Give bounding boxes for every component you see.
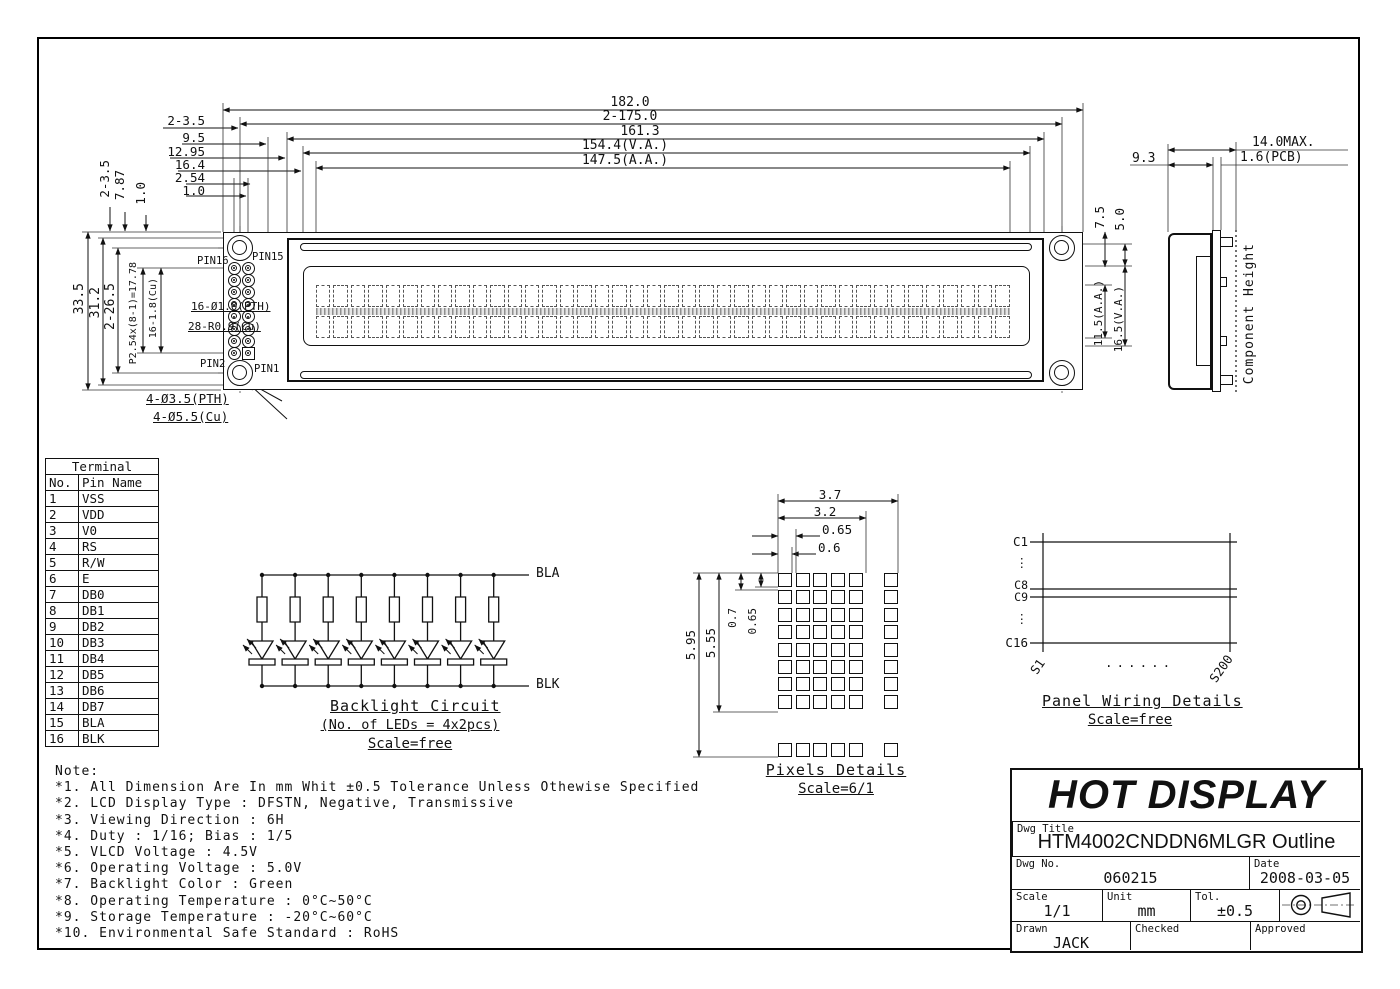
pixel-cell [796,608,810,622]
pixel-grid [778,573,898,757]
terminal-table-title: Terminal [46,459,159,475]
pin-pad [228,335,241,348]
note-line: *8. Operating Temperature : 0°C~50°C [55,894,699,910]
date-cell: Date 2008-03-05 [1249,856,1360,889]
pixel-cell [778,625,792,639]
char-cell [839,285,853,307]
char-cell [525,285,539,307]
terminal-row: 7DB0 [46,587,159,603]
side-view-pin [1220,375,1233,385]
char-cell [455,316,469,338]
char-cell [647,316,661,338]
char-cell [386,285,400,307]
note-line: *7. Backlight Color : Green [55,877,699,893]
pin-label: PIN16 [197,256,229,267]
blk-net-label: BLK [536,678,559,692]
char-cell [699,285,713,307]
terminal-row: 1VSS [46,491,159,507]
terminal-row: 13DB6 [46,683,159,699]
terminal-row: 4RS [46,539,159,555]
backlight-scale: Scale=free [330,737,490,752]
dim-label: 2-3.5 [145,114,205,127]
char-cell [664,316,678,338]
char-cell [908,316,922,338]
pixel-cell [796,660,810,674]
terminal-row: 9DB2 [46,619,159,635]
checked-cell: Checked [1130,921,1250,950]
char-cell [874,285,888,307]
terminal-row: 6E [46,571,159,587]
char-cell [821,285,835,307]
pad-spec-label: 16-Ø1.0(PTH) [191,301,270,313]
pixel-cell [813,608,827,622]
dim-label: P2.54x(8-1)=17.78 [128,262,139,364]
terminal-row: 14DB7 [46,699,159,715]
char-cell [699,316,713,338]
char-cell [978,316,992,338]
pin-pad [228,347,241,360]
side-view-solder-bump [1220,336,1227,346]
note-line: *10. Environmental Safe Standard : RoHS [55,926,699,942]
mount-hole [1049,235,1075,261]
char-cell [978,285,992,307]
pixel-cell [796,695,810,709]
dim-label: 2-175.0 [585,110,675,124]
pixel-cell [796,643,810,657]
char-cell [577,316,591,338]
terminal-row: 2VDD [46,507,159,523]
dim-label: 1.0 [133,182,148,205]
pixel-cell [849,677,863,691]
terminal-row: 15BLA [46,715,159,731]
terminal-col-no: No. [46,475,79,491]
pixel-cell [813,590,827,604]
dwg-no-cell: Dwg No. 060215 [1012,856,1249,889]
pad-spec-label: 28-R0.9(Cu) [188,321,261,333]
pin-pad [228,274,241,287]
side-view-pcb [1212,230,1221,392]
terminal-row: 5R/W [46,555,159,571]
char-cell [804,316,818,338]
pin-label: PIN1 [254,364,279,375]
dim-label: 11.5(A.A.) [1092,280,1105,346]
unit-value: mm [1103,902,1190,920]
char-cell [386,316,400,338]
dim-label: 0.7 [726,608,739,628]
pixel-cell [884,677,898,691]
pixel-cell [796,743,810,757]
dim-label: 1.0 [145,184,205,197]
title-block: HOT DISPLAY Dwg Title HTM4002CNDDN6MLGR … [1010,768,1363,953]
char-cell [316,285,330,307]
pixel-cell [849,590,863,604]
char-cell [508,285,522,307]
pixel-cell [849,573,863,587]
note-line: *5. VLCD Voltage : 4.5V [55,845,699,861]
third-angle-projection-icon [1280,890,1359,920]
char-cell [804,285,818,307]
char-cell [368,316,382,338]
char-cell [560,285,574,307]
ellipsis: ⋮ [1000,556,1028,569]
terminal-row: 12DB5 [46,667,159,683]
char-cell [839,316,853,338]
mount-hole-label: 4-Ø3.5(PTH) [146,392,229,405]
pixel-cell [831,573,845,587]
char-cell [995,316,1009,338]
pixel-cell [831,660,845,674]
notes-title: Note: [55,764,699,780]
char-cell [577,285,591,307]
char-cell [682,285,696,307]
pin-pad [242,335,255,348]
approved-label: Approved [1255,923,1306,935]
pixel-cell [778,677,792,691]
dim-label: 31.2 [88,287,103,318]
pixel-cell [813,695,827,709]
char-cell [595,285,609,307]
pixel-cell [884,743,898,757]
char-cell [316,316,330,338]
pixel-cell [796,625,810,639]
char-cell [769,316,783,338]
char-row-1 [316,285,1010,307]
pixel-cell [796,677,810,691]
char-cell [421,285,435,307]
char-cell [752,316,766,338]
dwg-no-value: 060215 [1012,869,1249,887]
side-view-pin [1220,237,1233,247]
pin-label: PIN2 [200,359,225,370]
char-cell [891,316,905,338]
backlight-title: Backlight Circuit [330,699,490,715]
segment-dots: ...... [1105,656,1174,669]
char-cell [333,316,347,338]
char-cell [351,285,365,307]
dim-label: 5.0 [1112,208,1127,231]
char-cell [926,316,940,338]
dim-label: 2-3.5 [97,160,112,198]
terminal-row: 8DB1 [46,603,159,619]
note-line: *6. Operating Voltage : 5.0V [55,861,699,877]
char-cell [734,285,748,307]
char-cell [542,316,556,338]
backlight-subtitle: (No. of LEDs = 4x2pcs) [302,718,518,732]
terminal-row: 3V0 [46,523,159,539]
pixel-cell [849,695,863,709]
dim-label: 154.4(V.A.) [570,139,680,153]
char-cell [490,316,504,338]
com-label: C16 [1000,636,1028,649]
pixel-cell [813,660,827,674]
char-cell [421,316,435,338]
tol-value: ±0.5 [1191,902,1279,920]
pixel-cell [813,625,827,639]
dim-label: 16.5(V.A.) [1112,286,1125,352]
char-cell [786,285,800,307]
char-cell [542,285,556,307]
pixel-cell [831,677,845,691]
ellipsis: ⋮ [1000,612,1028,625]
terminal-row: 10DB3 [46,635,159,651]
dim-label: 3.7 [800,488,860,501]
pixel-cell [813,743,827,757]
unit-cell: Unit mm [1102,889,1190,921]
projection-symbol-cell [1279,889,1360,921]
char-cell [403,285,417,307]
pixel-cell [831,625,845,639]
pixel-cell [813,573,827,587]
mount-hole [227,235,253,261]
pixels-title: Pixels Details [756,763,916,779]
mount-hole-label: 4-Ø5.5(Cu) [153,410,228,423]
panel-wiring-title: Panel Wiring Details [1042,694,1218,710]
pixel-cell [884,590,898,604]
notes-block: Note: *1. All Dimension Are In mm Whit ±… [55,764,699,942]
pin-pad [242,274,255,287]
dim-label: 2-26.5 [103,283,118,330]
note-line: *9. Storage Temperature : -20°C~60°C [55,910,699,926]
char-cell [455,285,469,307]
char-cell [438,285,452,307]
pixel-cell [778,743,792,757]
pixel-cell [778,695,792,709]
pixel-cell [813,643,827,657]
char-cell [943,316,957,338]
backlight-circuit-schematic [243,573,529,688]
tol-cell: Tol. ±0.5 [1190,889,1279,921]
char-cell [490,285,504,307]
char-cell [995,285,1009,307]
dim-label: 7.5 [1092,206,1107,229]
char-cell [961,316,975,338]
char-cell [821,316,835,338]
pin-label: PIN15 [252,252,284,263]
pin-pad [242,347,255,360]
side-view-solder-bump [1220,277,1227,287]
company-name: HOT DISPLAY [1012,770,1361,821]
dwg-title-value: HTM4002CNDDN6MLGR Outline [1013,831,1360,854]
dim-label: 0.6 [818,541,841,554]
com-label: C9 [1000,591,1028,603]
char-cell [786,316,800,338]
note-line: *2. LCD Display Type : DFSTN, Negative, … [55,796,699,812]
side-view-lcd-stack [1196,256,1211,366]
dim-label: 182.0 [590,96,670,110]
pixel-cell [884,573,898,587]
dim-label: 1.6(PCB) [1240,151,1303,165]
char-cell [926,285,940,307]
char-cell [717,285,731,307]
pin-pad [242,262,255,275]
pin-pad [242,286,255,299]
char-cell [595,316,609,338]
char-cell [560,316,574,338]
com-label: C1 [1000,535,1028,548]
dwg-title-cell: Dwg Title HTM4002CNDDN6MLGR Outline [1012,821,1360,856]
pixel-cell [831,608,845,622]
mount-hole [1049,360,1075,386]
char-row-gap [316,308,1010,315]
terminal-row: 16BLK [46,731,159,747]
bezel-top-tab [300,243,1032,251]
approved-cell: Approved [1250,921,1360,950]
dim-label: 161.3 [600,125,680,139]
pixel-cell [831,695,845,709]
pixel-cell [849,660,863,674]
char-cell [717,316,731,338]
pixel-cell [796,573,810,587]
dim-label: 14.0MAX. [1252,136,1315,150]
checked-label: Checked [1135,923,1179,935]
dim-label: 9.3 [1132,152,1155,166]
pixel-cell [796,590,810,604]
bezel-bottom-tab [300,371,1032,379]
char-cell [473,285,487,307]
char-cell [368,285,382,307]
char-cell [961,285,975,307]
pixel-cell [778,643,792,657]
pixel-cell [849,608,863,622]
panel-wiring-schematic [1030,533,1237,652]
dim-label: 9.5 [145,131,205,144]
pixel-cell [813,677,827,691]
char-cell [891,285,905,307]
char-cell [769,285,783,307]
drawing-sheet: 182.0 2-175.0 161.3 154.4(V.A.) 147.5(A.… [0,0,1400,989]
dim-label: 7.87 [112,170,127,200]
char-cell [333,285,347,307]
drawn-cell: Drawn JACK [1012,921,1130,950]
pixel-cell [778,660,792,674]
pixel-cell [778,590,792,604]
component-height-label: Component Height [1242,243,1257,384]
char-cell [664,285,678,307]
char-cell [630,285,644,307]
terminal-row: 11DB4 [46,651,159,667]
pixel-cell [849,743,863,757]
terminal-col-pin-name: Pin Name [79,475,159,491]
mount-hole [227,360,253,386]
dim-label: 5.55 [703,628,718,658]
pixel-cell [884,695,898,709]
char-cell [438,316,452,338]
drawn-value: JACK [1012,934,1130,952]
char-cell [874,316,888,338]
pixel-cell [884,643,898,657]
char-cell [403,316,417,338]
dim-label: 33.5 [72,283,87,314]
char-cell [752,285,766,307]
pixel-cell [778,608,792,622]
char-cell [682,316,696,338]
bla-net-label: BLA [536,567,559,581]
char-row-2 [316,316,1010,338]
note-line: *1. All Dimension Are In mm Whit ±0.5 To… [55,780,699,796]
pixel-cell [884,608,898,622]
char-cell [630,316,644,338]
char-cell [351,316,365,338]
scale-value: 1/1 [1012,902,1102,920]
pixel-cell [831,743,845,757]
dim-label: 16-1.8(Cu) [148,278,159,338]
dim-label: 0.65 [822,523,852,536]
pixel-cell [831,643,845,657]
pixel-cell [831,590,845,604]
dim-label: 5.95 [683,630,698,660]
pin-pad [228,262,241,275]
pixels-scale: Scale=6/1 [756,782,916,797]
char-cell [612,285,626,307]
char-cell [943,285,957,307]
pixel-cell [884,625,898,639]
char-cell [856,285,870,307]
pixel-cell [849,643,863,657]
pin-pad [228,286,241,299]
scale-cell: Scale 1/1 [1012,889,1102,921]
note-line: *4. Duty : 1/16; Bias : 1/5 [55,829,699,845]
pixel-cell [778,573,792,587]
char-cell [856,316,870,338]
char-cell [612,316,626,338]
panel-wiring-scale: Scale=free [1042,713,1218,728]
dim-label: 3.2 [795,505,855,518]
terminal-table: Terminal No. Pin Name 1VSS2VDD3V04RS5R/W… [45,458,159,747]
date-value: 2008-03-05 [1250,869,1360,887]
char-cell [473,316,487,338]
char-cell [734,316,748,338]
pixel-cell [849,625,863,639]
char-cell [508,316,522,338]
dim-label: 0.65 [746,608,759,635]
char-cell [525,316,539,338]
char-cell [647,285,661,307]
note-line: *3. Viewing Direction : 6H [55,813,699,829]
dim-label: 147.5(A.A.) [570,154,680,168]
pixel-cell [884,660,898,674]
char-cell [908,285,922,307]
